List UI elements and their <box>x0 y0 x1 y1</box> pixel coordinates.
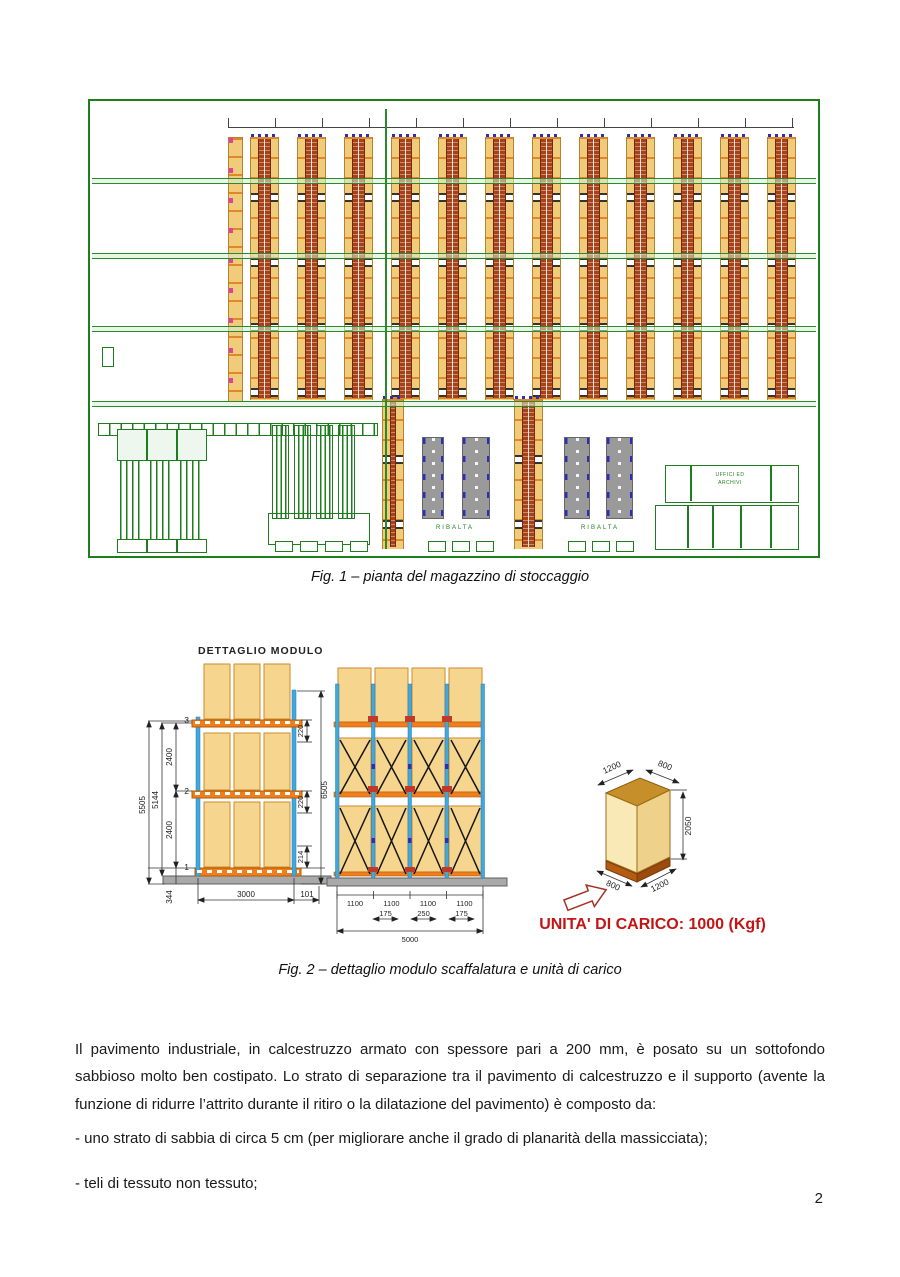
dock-door <box>300 541 318 552</box>
plan-grid-line <box>92 401 816 407</box>
dim-5144: 5144 <box>151 791 160 809</box>
dock-door <box>568 541 586 552</box>
dock-door <box>452 541 470 552</box>
plan-office-wall <box>687 505 689 548</box>
rack-core <box>390 401 396 547</box>
rack-front-view-drawing: 1100 1100 1100 1100 175 250 175 5000 <box>325 650 515 950</box>
machine-tower <box>272 425 289 519</box>
dim-800-bottom: 800 <box>605 878 622 893</box>
rack-core <box>522 401 535 547</box>
plan-office-wall <box>740 505 742 548</box>
rack-side-view-drawing: 3 2 1 5505 5144 2400 2400 344 <box>135 650 335 950</box>
dim-220-upper: 220 <box>296 725 305 738</box>
rack-row <box>485 137 514 400</box>
plan-small-equipment <box>102 347 114 367</box>
dock-strip <box>462 437 490 519</box>
upright-right <box>292 690 296 876</box>
dim-800-top: 800 <box>657 758 674 773</box>
dock-door <box>476 541 494 552</box>
dim-101: 101 <box>300 890 314 899</box>
plan-office-wall <box>712 505 714 548</box>
dock-door <box>616 541 634 552</box>
rack-row-first <box>228 137 243 402</box>
dim-2050: 2050 <box>683 816 693 835</box>
dim-1100-3: 1100 <box>420 899 436 908</box>
plan-office-wall <box>770 505 772 548</box>
office-label-line2: ARCHIVI <box>690 480 770 488</box>
rack-row <box>250 137 279 400</box>
bullet-sand-text: - uno strato di sabbia di circa 5 cm (pe… <box>75 1125 825 1152</box>
pallet-tier-3 <box>204 664 290 719</box>
rack-row <box>532 137 561 400</box>
dim-1200-top: 1200 <box>601 759 623 776</box>
dock-strip <box>422 437 444 519</box>
dim-1100-1: 1100 <box>347 899 363 908</box>
machine-head <box>177 429 207 461</box>
plan-dimension-chain <box>228 118 794 128</box>
rack-row-extension <box>514 399 543 549</box>
bullet-sand: - uno strato di sabbia di circa 5 cm (pe… <box>75 1125 825 1152</box>
floor-slab <box>327 878 507 886</box>
machine-foot <box>117 539 147 553</box>
figure2-caption: Fig. 2 – dettaglio modulo scaffalatura e… <box>0 962 900 978</box>
rack-row <box>720 137 749 400</box>
rack-row <box>344 137 373 400</box>
rack-row <box>297 137 326 400</box>
unit-load-caption: UNITA' DI CARICO: 1000 (Kgf) <box>525 916 780 934</box>
plan-grid-line <box>92 178 816 184</box>
unit-load-drawing: 1200 800 2050 800 1200 <box>540 740 780 920</box>
page-number: 2 <box>75 1190 823 1207</box>
dim-175-left: 175 <box>379 909 392 918</box>
machine-tower <box>294 425 311 519</box>
dim-214: 214 <box>296 851 305 864</box>
machine-tower <box>316 425 333 519</box>
dock-strip <box>606 437 633 519</box>
dock-door <box>428 541 446 552</box>
pallet-tier-1 <box>204 802 290 867</box>
rack-row <box>767 137 796 400</box>
plan-column-line <box>385 109 387 549</box>
plan-office-wall <box>770 465 772 501</box>
floor-slab <box>163 876 331 884</box>
machine-foot <box>147 539 177 553</box>
paragraph-flooring: Il pavimento industriale, in calcestruzz… <box>75 1036 825 1118</box>
dim-344: 344 <box>165 890 174 904</box>
level-number-1: 1 <box>184 862 189 872</box>
plan-grid-line <box>92 253 816 259</box>
machine-foot <box>177 539 207 553</box>
plan-office-label: UFFICI ED ARCHIVI <box>690 472 770 487</box>
office-label-line1: UFFICI ED <box>690 472 770 480</box>
dock-label: RIBALTA <box>436 525 474 531</box>
entry-arrow-icon <box>562 879 610 916</box>
dim-175-right: 175 <box>455 909 468 918</box>
dim-2400-upper: 2400 <box>165 748 174 766</box>
dock-door <box>275 541 293 552</box>
dim-5000: 5000 <box>402 935 419 944</box>
dim-1100-4: 1100 <box>456 899 472 908</box>
plan-office-bottom-row <box>655 505 799 550</box>
document-page: UFFICI ED ARCHIVI RIBALTA RIBALTA Fig. 1… <box>0 0 900 1277</box>
pallet-tier-2 <box>204 733 290 790</box>
machine-line <box>120 433 144 553</box>
dock-door <box>350 541 368 552</box>
rack-row <box>673 137 702 400</box>
dim-3000: 3000 <box>237 890 255 899</box>
figure1-caption: Fig. 1 – pianta del magazzino di stoccag… <box>0 569 900 585</box>
dim-220-lower: 220 <box>296 796 305 809</box>
dock-strip <box>564 437 590 519</box>
machine-line <box>150 433 174 553</box>
box-front-face <box>606 793 637 873</box>
rack-row <box>438 137 467 400</box>
dock-door <box>592 541 610 552</box>
dock-label: RIBALTA <box>581 525 619 531</box>
dim-1100-2: 1100 <box>383 899 399 908</box>
dim-5505: 5505 <box>138 796 147 814</box>
plan-grid-line <box>92 326 816 332</box>
machine-line <box>180 433 204 553</box>
rack-row <box>626 137 655 400</box>
dock-door <box>325 541 343 552</box>
warehouse-plan: UFFICI ED ARCHIVI RIBALTA RIBALTA <box>88 99 820 558</box>
dim-2400-lower: 2400 <box>165 821 174 839</box>
rack-row <box>579 137 608 400</box>
dim-1200-bottom: 1200 <box>649 877 671 894</box>
machine-tower <box>338 425 355 519</box>
body-text: Il pavimento industriale, in calcestruzz… <box>75 1036 825 1118</box>
rack-row <box>391 137 420 400</box>
dim-250: 250 <box>417 909 430 918</box>
machine-head <box>147 429 177 461</box>
machine-head <box>117 429 147 461</box>
level-number-3: 3 <box>184 715 189 725</box>
